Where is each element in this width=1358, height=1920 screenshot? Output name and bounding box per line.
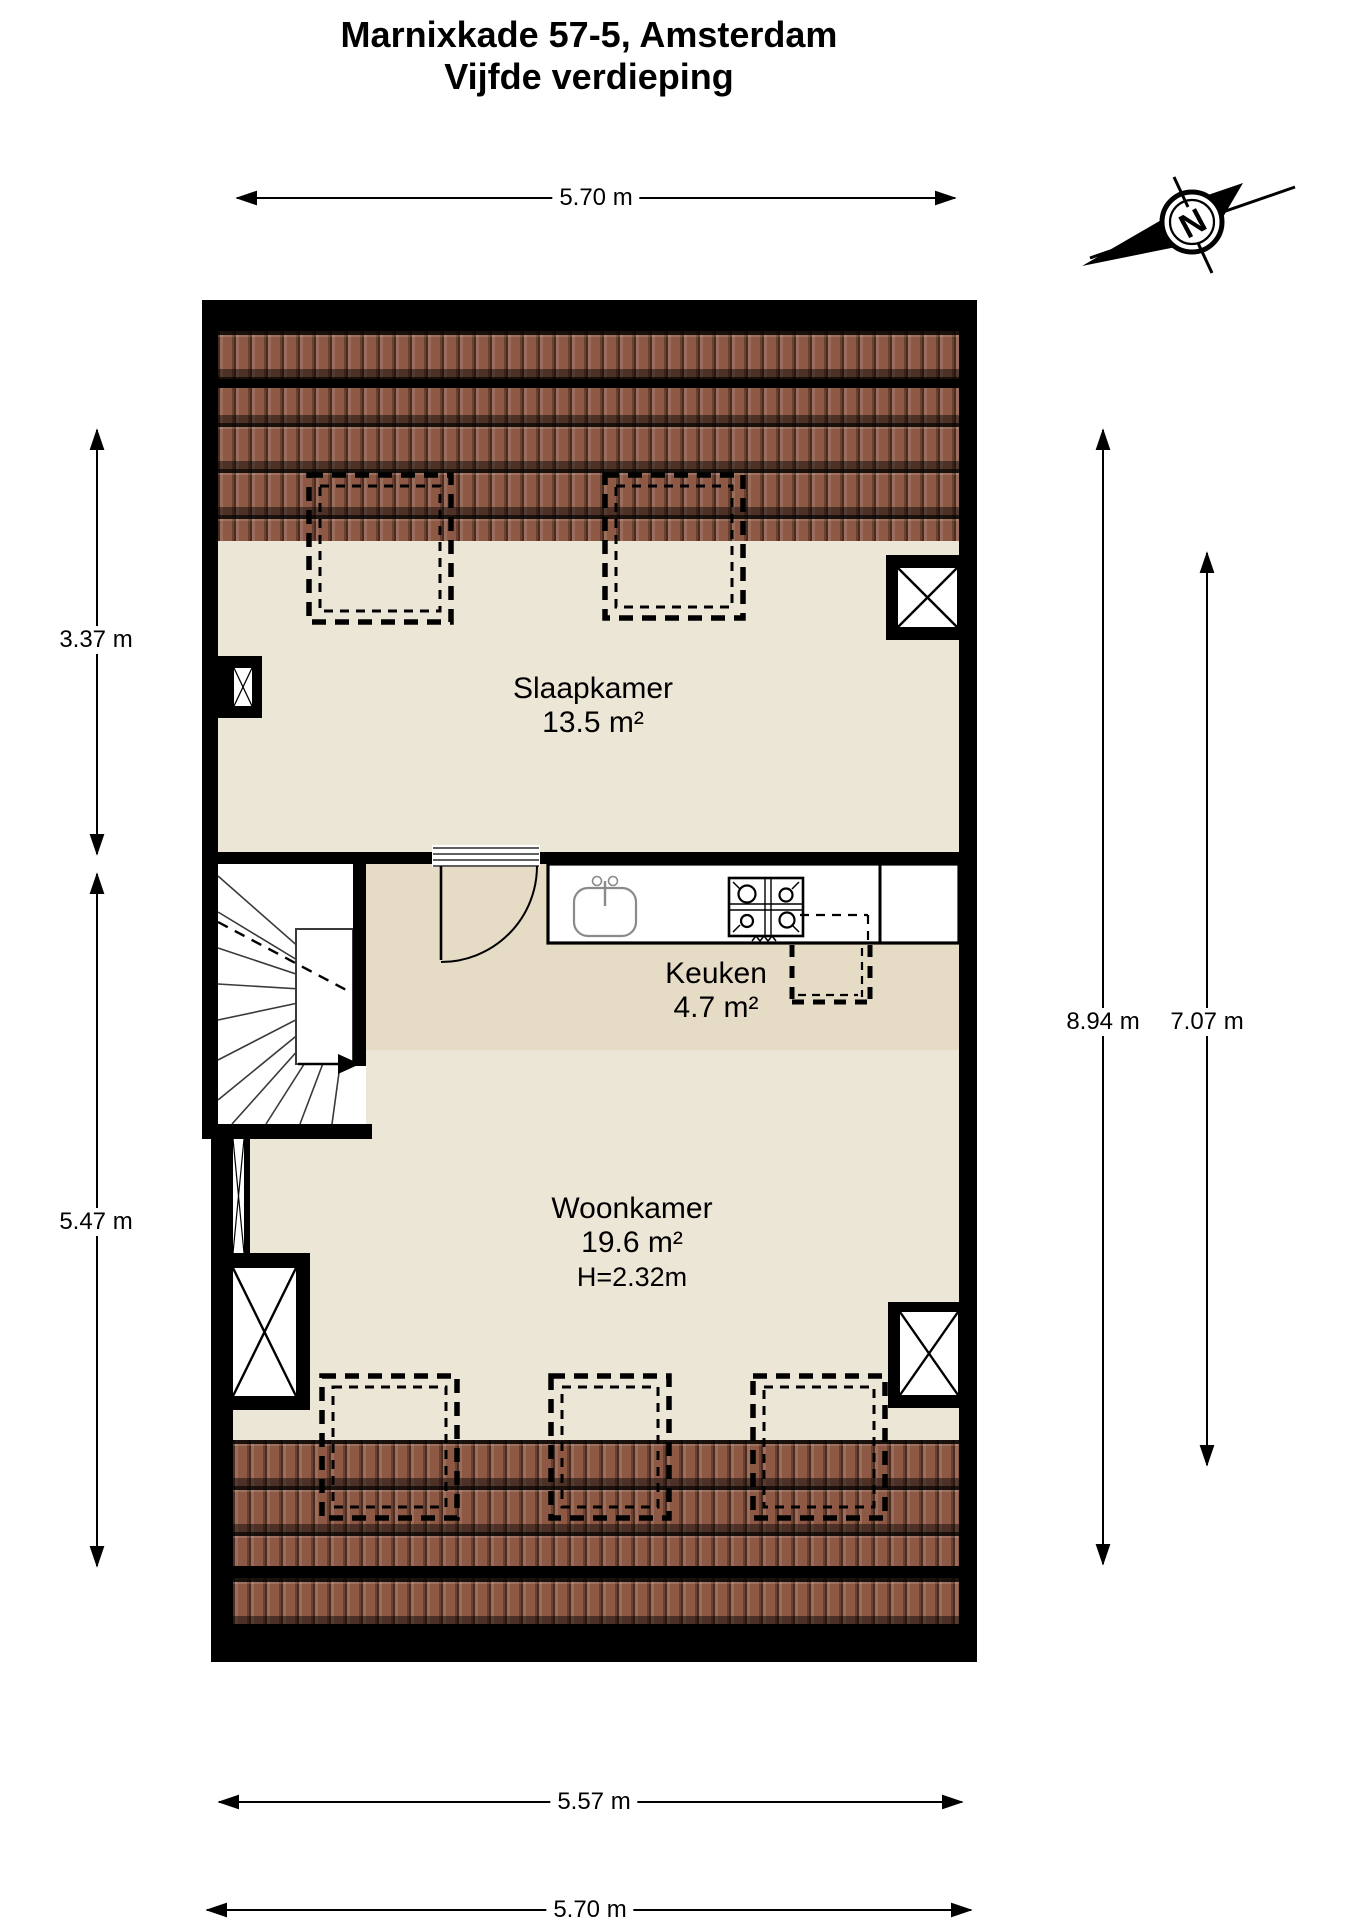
room-name: Slaapkamer: [513, 672, 673, 706]
dim-label-bottom-outer: 5.70 m: [546, 1896, 633, 1920]
stair-landing: [296, 929, 353, 1064]
room-label-woonkamer: Woonkamer 19.6 m² H=2.32m: [551, 1192, 712, 1294]
staircase-icon: [218, 864, 366, 1124]
dim-label-right-outer: 8.94 m: [1059, 1008, 1146, 1036]
room-area: 4.7 m²: [665, 991, 767, 1025]
dim-label-right-inner: 7.07 m: [1163, 1008, 1250, 1036]
door-icon: [432, 845, 540, 962]
roof-window-woonkamer-2: [551, 1376, 669, 1518]
wall-stair-divider: [353, 864, 366, 1066]
dim-label-left-upper: 3.37 m: [52, 626, 139, 654]
flue-niche-left: [211, 1124, 250, 1268]
roof-window-slaapkamer-left: [309, 475, 451, 622]
wall-bottom: [211, 1624, 977, 1662]
wall-right: [959, 300, 977, 1662]
room-ceiling-height: H=2.32m: [551, 1260, 712, 1294]
floorplan-page: Marnixkade 57-5, Amsterdam Vijfde verdie…: [0, 0, 1358, 1920]
door-swing-arc: [441, 866, 537, 962]
wall-middle-left: [202, 852, 432, 864]
room-name: Keuken: [665, 957, 767, 991]
wall-top: [202, 300, 977, 331]
room-label-slaapkamer: Slaapkamer 13.5 m²: [513, 672, 673, 740]
shaft-woonkamer-left: [211, 1253, 310, 1410]
roof-window-woonkamer-1: [322, 1376, 457, 1518]
dim-label-left-lower: 5.47 m: [52, 1208, 139, 1236]
window-slaapkamer-left: [202, 656, 262, 718]
dim-label-bottom-inner: 5.57 m: [550, 1788, 637, 1816]
shaft-slaapkamer-right: [886, 555, 961, 640]
kitchen-counter: [548, 864, 959, 943]
roof-window-slaapkamer-right: [605, 475, 743, 618]
compass-rose-icon: N: [1082, 177, 1295, 273]
wall-middle-right: [540, 852, 959, 864]
room-name: Woonkamer: [551, 1192, 712, 1226]
dim-label-top: 5.70 m: [552, 184, 639, 212]
shaft-woonkamer-right: [888, 1302, 977, 1408]
room-label-keuken: Keuken 4.7 m²: [665, 957, 767, 1025]
room-area: 13.5 m²: [513, 706, 673, 740]
roof-window-woonkamer-3: [753, 1376, 885, 1518]
room-area: 19.6 m²: [551, 1226, 712, 1260]
